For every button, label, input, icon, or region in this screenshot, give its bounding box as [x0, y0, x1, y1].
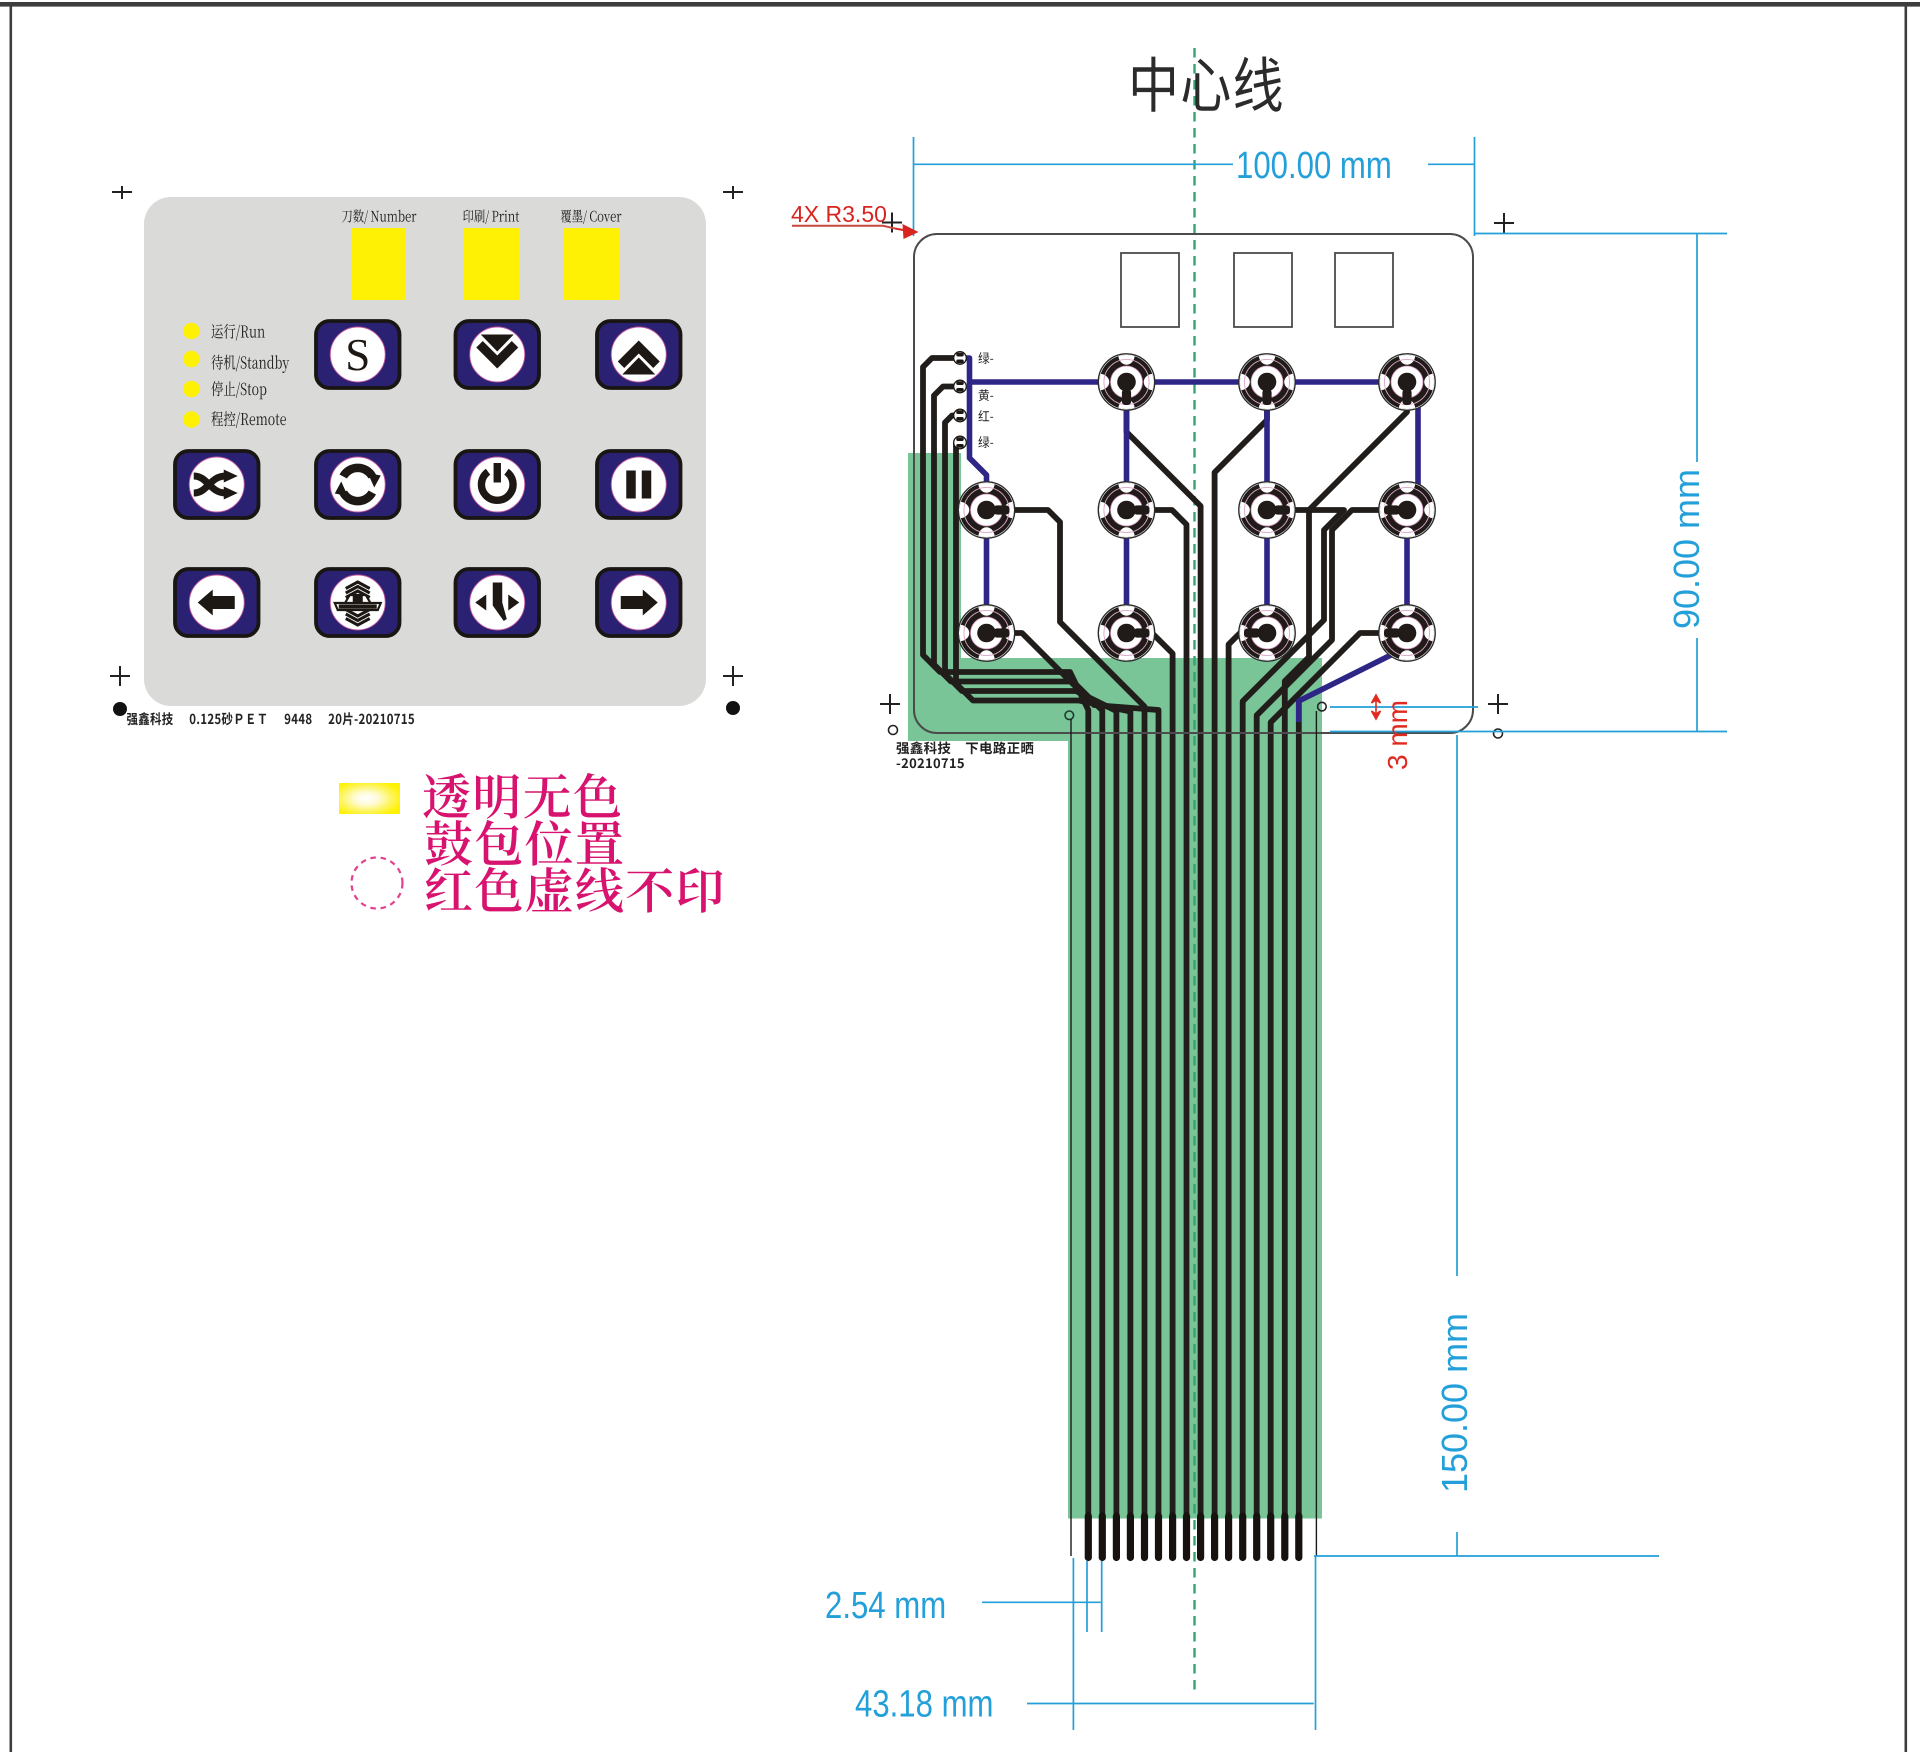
svg-text:43.18 mm: 43.18 mm — [855, 1684, 994, 1726]
svg-text:S: S — [345, 330, 370, 380]
svg-text:100.00 mm: 100.00 mm — [1236, 145, 1392, 187]
svg-text:150.00 mm: 150.00 mm — [1434, 1313, 1475, 1493]
svg-text:3 mm: 3 mm — [1382, 700, 1413, 770]
svg-text:4X R3.50: 4X R3.50 — [791, 201, 887, 227]
svg-text:2.54 mm: 2.54 mm — [825, 1585, 946, 1627]
svg-text:90.00 mm: 90.00 mm — [1666, 469, 1707, 629]
